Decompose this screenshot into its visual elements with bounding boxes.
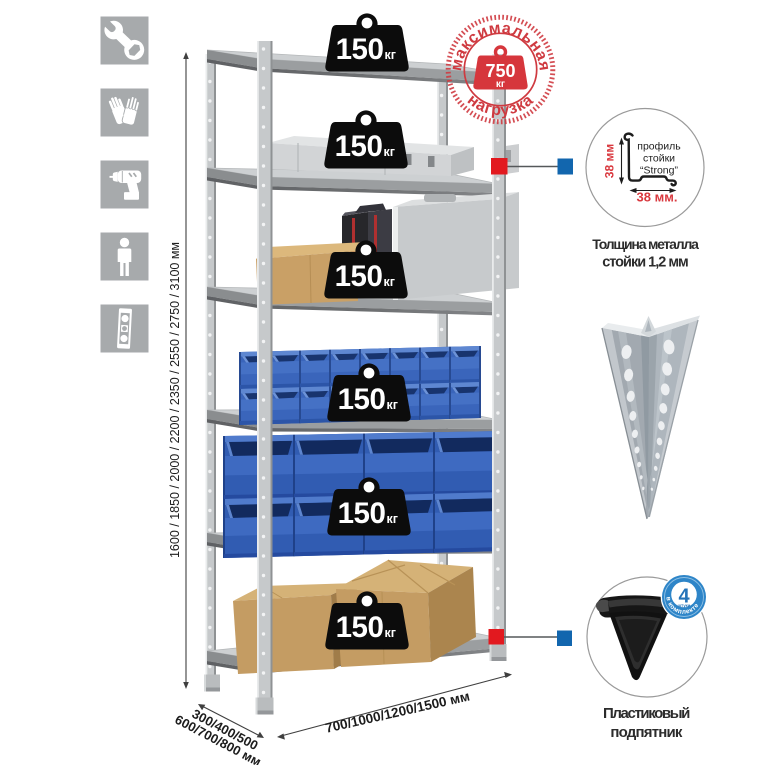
svg-text:1600 / 1850 / 2000 / 2200 / 23: 1600 / 1850 / 2000 / 2200 / 2350 / 2550 … [168,242,182,558]
svg-text:кг: кг [385,626,396,640]
svg-text:штуки: штуки [678,603,691,608]
svg-text:150: 150 [336,33,384,66]
svg-text:150: 150 [336,611,384,644]
svg-text:кг: кг [387,512,398,526]
svg-text:кг: кг [385,48,396,62]
svg-text:150: 150 [335,260,383,293]
svg-text:“Strong”: “Strong” [640,165,678,177]
svg-text:150: 150 [338,383,386,416]
svg-text:стойки 1,2 мм: стойки 1,2 мм [602,255,688,271]
svg-text:150: 150 [338,497,386,530]
svg-text:кг: кг [384,275,395,289]
svg-text:Толщина металла: Толщина металла [592,236,699,252]
svg-text:750: 750 [485,61,515,81]
svg-text:кг: кг [496,79,505,90]
svg-text:38 мм: 38 мм [603,144,617,179]
svg-text:стойки: стойки [643,153,675,165]
svg-text:Пластиковый: Пластиковый [603,705,690,722]
svg-text:38 мм.: 38 мм. [637,190,678,205]
svg-text:профиль: профиль [637,141,681,153]
svg-text:кг: кг [387,398,398,412]
svg-text:кг: кг [384,145,395,159]
svg-text:подпятник: подпятник [610,724,683,741]
svg-text:150: 150 [335,130,383,163]
